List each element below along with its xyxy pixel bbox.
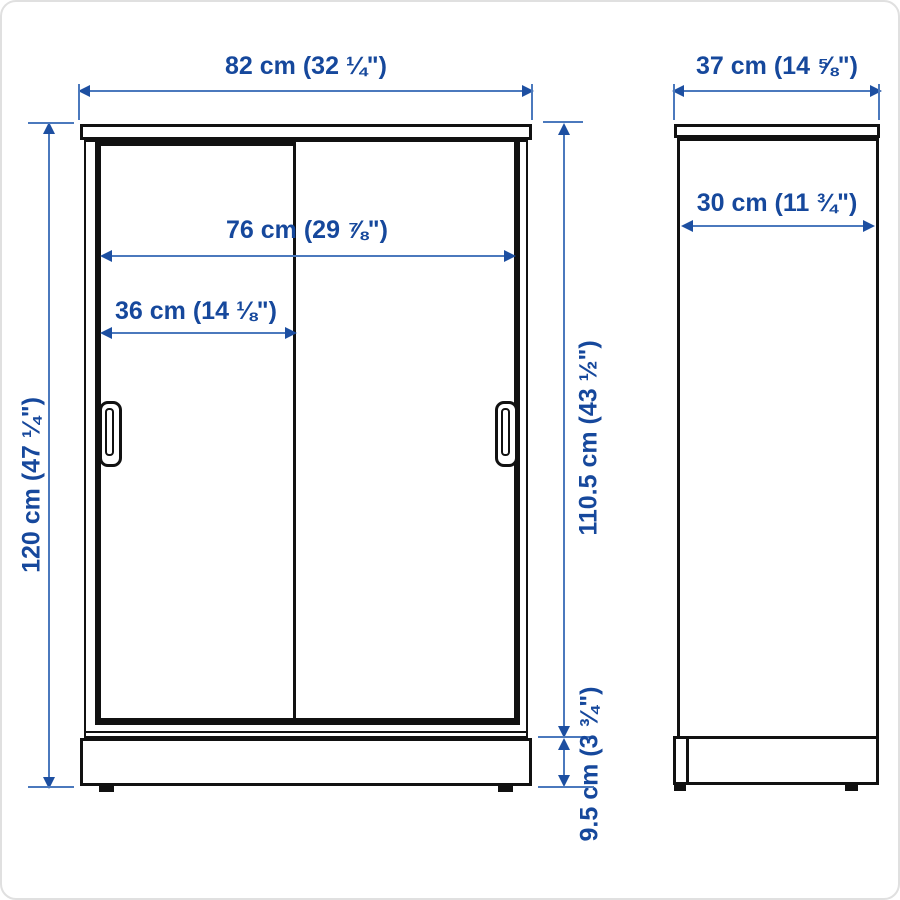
dim-label-front-width: 82 cm (32 ¼")	[225, 52, 387, 81]
front-plinth	[80, 738, 532, 786]
bottom-rail	[95, 718, 520, 725]
dim-label-total-height: 120 cm (47 ¼")	[18, 397, 47, 573]
arrow-up-icon	[558, 123, 570, 135]
dim-label-side-depth: 37 cm (14 ⅝")	[696, 52, 858, 81]
arrow-left-icon	[100, 327, 112, 339]
front-right-foot	[498, 786, 513, 792]
dim-label-door-height: 110.5 cm (43 ½")	[575, 340, 604, 535]
bottom-panel-line	[86, 731, 526, 733]
front-top-panel	[80, 124, 532, 140]
dim-line-total-height	[48, 124, 50, 787]
dim-line-door-width	[102, 332, 295, 334]
dimension-diagram: 82 cm (32 ¼") 37 cm (14 ⅝") 76 cm (29 ⅞"…	[0, 0, 900, 900]
arrow-right-icon	[504, 250, 516, 262]
right-door-handle-slot	[501, 408, 510, 456]
arrow-left-icon	[681, 220, 693, 232]
dim-line-opening-width	[102, 255, 514, 257]
side-plinth-line	[689, 736, 879, 739]
left-door-handle-slot	[105, 408, 114, 456]
right-door-handle	[495, 401, 518, 467]
extension-tick	[543, 121, 583, 123]
arrow-up-icon	[558, 738, 570, 750]
side-back-foot	[845, 785, 858, 791]
dim-line-front-width	[80, 90, 532, 92]
front-left-foot	[99, 786, 114, 792]
dim-label-inner-depth: 30 cm (11 ¾")	[697, 189, 858, 218]
extension-tick	[878, 84, 880, 120]
extension-tick	[28, 786, 74, 788]
arrow-right-icon	[285, 327, 297, 339]
side-front-leg	[673, 736, 689, 785]
left-door-handle	[99, 401, 122, 467]
dim-line-side-depth	[674, 90, 880, 92]
arrow-left-icon	[100, 250, 112, 262]
side-top-panel	[674, 124, 880, 138]
dim-line-inner-depth	[683, 225, 873, 227]
dim-label-plinth-height: 9.5 cm (3 ¾")	[576, 687, 605, 842]
arrow-right-icon	[870, 85, 882, 97]
arrow-right-icon	[863, 220, 875, 232]
extension-tick	[538, 786, 594, 788]
top-rail	[95, 141, 296, 146]
extension-tick	[531, 84, 533, 120]
dim-label-door-width: 36 cm (14 ⅛")	[115, 297, 277, 326]
extension-tick	[28, 122, 74, 124]
side-body	[677, 138, 879, 785]
dim-label-opening-width: 76 cm (29 ⅞")	[226, 216, 388, 245]
extension-tick	[78, 84, 80, 120]
side-front-foot	[674, 785, 686, 791]
dim-line-plinth-height	[563, 740, 565, 785]
extension-tick	[673, 84, 675, 120]
dim-line-door-height	[563, 125, 565, 736]
